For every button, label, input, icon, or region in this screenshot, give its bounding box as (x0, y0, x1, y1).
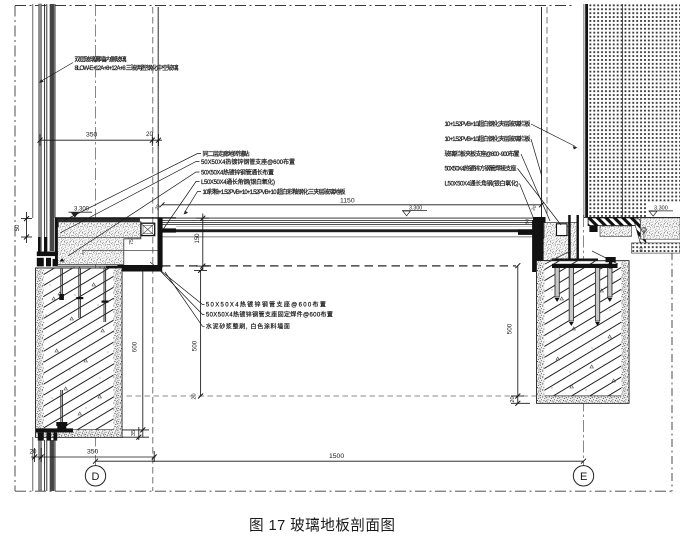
svg-text:35: 35 (131, 430, 137, 436)
svg-text:玻璃栏板夹板支座@800~900布置: 玻璃栏板夹板支座@800~900布置 (445, 150, 520, 158)
svg-text:50X50X4热镀锌钢管通长布置: 50X50X4热镀锌钢管通长布置 (201, 168, 274, 176)
svg-text:50: 50 (525, 218, 530, 224)
svg-text:20: 20 (510, 396, 516, 402)
svg-text:350: 350 (86, 132, 98, 139)
svg-text:50X50X4热镀锌钢管支座@600布置: 50X50X4热镀锌钢管支座@600布置 (201, 158, 295, 166)
svg-text:75: 75 (129, 239, 135, 245)
svg-text:20: 20 (30, 449, 37, 456)
svg-text:10+1.52PVB+10超白钢化夹层玻璃栏板: 10+1.52PVB+10超白钢化夹层玻璃栏板 (445, 135, 531, 143)
svg-text:20: 20 (146, 131, 153, 138)
svg-text:350: 350 (87, 449, 99, 456)
svg-text:D: D (92, 471, 100, 483)
svg-text:500: 500 (507, 323, 514, 334)
svg-text:同二层走廊地砖铺贴: 同二层走廊地砖铺贴 (203, 150, 250, 158)
svg-text:8LOW-E+12A+8+12A+8 三玻两腔钢化中空玻璃: 8LOW-E+12A+8+12A+8 三玻两腔钢化中空玻璃 (75, 64, 179, 72)
svg-text:E: E (580, 471, 587, 483)
svg-text:500: 500 (192, 340, 199, 351)
svg-text:双层玻璃幕墙内侧玻璃: 双层玻璃幕墙内侧玻璃 (75, 56, 127, 64)
svg-text:50X50X4热镀锌钢管支座@600布置: 50X50X4热镀锌钢管支座@600布置 (206, 301, 326, 309)
svg-text:10彩釉+1.52PVB+10+1.52PVB+10 超白彩: 10彩釉+1.52PVB+10+1.52PVB+10 超白彩釉钢化三夹层玻璃地板 (203, 188, 346, 196)
svg-text:L50X50X4通长角钢(银白氧化): L50X50X4通长角钢(银白氧化) (445, 180, 519, 188)
svg-text:20: 20 (192, 393, 198, 399)
svg-text:600: 600 (132, 341, 139, 352)
svg-text:1500: 1500 (329, 453, 344, 460)
svg-text:L50X50X4通长角钢(银白氧化): L50X50X4通长角钢(银白氧化) (201, 178, 275, 186)
svg-text:150: 150 (195, 233, 201, 244)
svg-text:50X50X4热镀锌方钢管焊接支座: 50X50X4热镀锌方钢管焊接支座 (445, 165, 517, 173)
svg-text:10+1.52PVB+10超白钢化夹层玻璃栏板: 10+1.52PVB+10超白钢化夹层玻璃栏板 (445, 120, 531, 128)
svg-text:水泥砂浆整刷, 白色涂料墙面: 水泥砂浆整刷, 白色涂料墙面 (206, 322, 290, 330)
svg-text:1150: 1150 (340, 198, 355, 205)
svg-text:40: 40 (642, 228, 647, 234)
svg-text:图 17 玻璃地板剖面图: 图 17 玻璃地板剖面图 (249, 516, 395, 534)
svg-text:50: 50 (15, 224, 21, 231)
svg-text:20: 20 (639, 246, 644, 252)
svg-text:50X50X4热镀锌钢管支座固定焊件@600布置: 50X50X4热镀锌钢管支座固定焊件@600布置 (206, 311, 333, 319)
